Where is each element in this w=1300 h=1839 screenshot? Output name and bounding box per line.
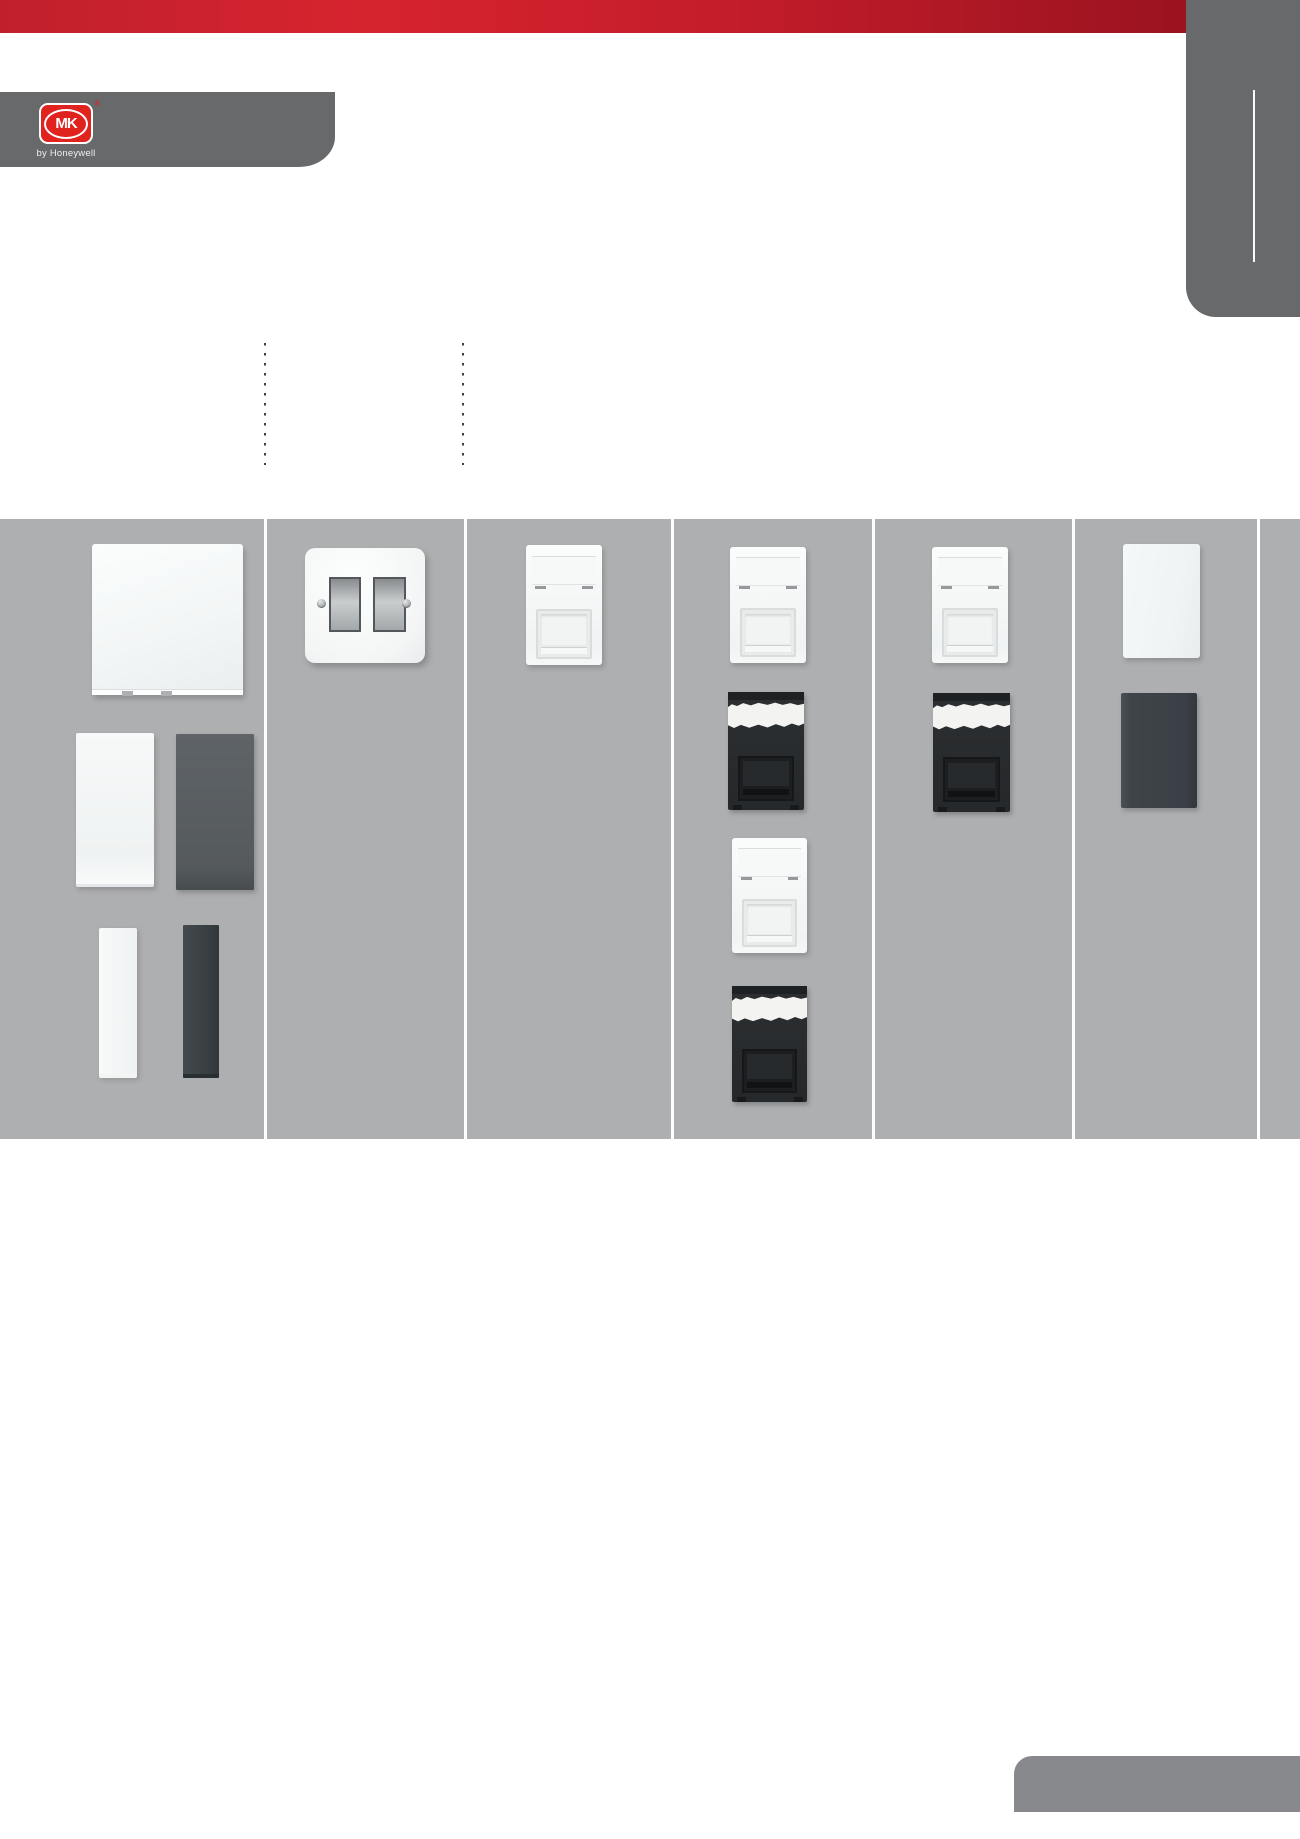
product-data-module-white: [526, 545, 602, 665]
module-foot: [996, 807, 1005, 812]
dotted-guide-1: [264, 343, 266, 465]
product-blank-module-graphite: [1121, 693, 1197, 808]
registered-trademark-icon: ®: [94, 100, 100, 108]
label-window: [736, 557, 800, 586]
product-data-module-white: [932, 547, 1008, 663]
shutter-recess: [942, 608, 998, 657]
column-separator-3: [671, 519, 674, 1139]
module-top-cap: [732, 986, 807, 994]
plate-notch: [161, 691, 172, 696]
shutter-bar: [747, 935, 792, 942]
column-separator-6: [1257, 519, 1260, 1139]
mk-logo-text: MK: [55, 116, 76, 131]
clip-mark: [741, 877, 752, 880]
shutter-bar: [948, 791, 995, 797]
product-data-module-black: [728, 692, 804, 810]
product-blank-module-white: [1123, 544, 1200, 658]
torn-label: [728, 701, 804, 729]
product-data-module-black: [732, 986, 807, 1102]
torn-label: [732, 995, 807, 1023]
module-top-cap: [933, 693, 1010, 701]
shutter-flap: [745, 614, 791, 644]
label-window: [532, 556, 596, 586]
mk-logo-ellipse: MK: [44, 109, 88, 139]
shutter-flap: [747, 1054, 792, 1079]
product-data-module-white: [732, 838, 807, 953]
shutter-recess: [738, 756, 794, 801]
screw-icon: [402, 599, 411, 608]
product-data-module-black: [933, 693, 1010, 812]
shutter-recess: [742, 1049, 798, 1093]
shutter-recess: [536, 609, 592, 659]
clip-mark: [788, 877, 799, 880]
column-separator-2: [464, 519, 467, 1139]
clip-mark: [739, 586, 750, 589]
clip-mark: [535, 586, 546, 589]
product-half-blank-strip-graphite: [183, 925, 219, 1078]
product-grid-band: [0, 519, 1300, 1139]
product-half-blank-strip-white: [99, 928, 137, 1078]
plate-notch: [122, 691, 133, 696]
rocker-switch: [373, 577, 405, 632]
shutter-bar: [541, 647, 587, 654]
module-foot: [790, 805, 799, 810]
dotted-guide-2: [462, 343, 464, 465]
shutter-flap: [541, 614, 587, 645]
module-top-cap: [728, 692, 804, 700]
label-window: [938, 557, 1002, 586]
product-grid-switch-2gang-white: [305, 548, 425, 663]
brand-header-bar: MK ® by Honeywell: [0, 92, 335, 167]
clip-mark: [786, 586, 797, 589]
shutter-flap: [948, 763, 995, 789]
label-window: [738, 848, 801, 876]
column-separator-4: [872, 519, 875, 1139]
torn-label: [933, 703, 1010, 732]
shutter-flap: [947, 614, 993, 644]
catalog-page: MK ® by Honeywell: [0, 0, 1300, 1839]
screw-icon: [317, 599, 326, 608]
shutter-bar: [947, 645, 993, 652]
top-right-tab: [1186, 0, 1300, 317]
shutter-bar: [743, 789, 789, 795]
rocker-switch: [329, 577, 361, 632]
bottom-right-tab: [1014, 1756, 1300, 1812]
mk-logo: MK ®: [39, 103, 93, 144]
shutter-recess: [740, 608, 796, 657]
mk-logo-subtext: by Honeywell: [18, 148, 114, 159]
product-blanking-plate-white-large: [92, 544, 243, 695]
module-foot: [737, 1097, 746, 1102]
clip-mark: [988, 586, 999, 589]
module-foot: [794, 1097, 803, 1102]
product-euro-plate-graphite-tall: [176, 734, 254, 890]
column-separator-1: [264, 519, 267, 1139]
module-foot: [938, 807, 947, 812]
product-data-module-white: [730, 547, 806, 663]
shutter-recess: [742, 899, 798, 947]
product-euro-plate-white-tall: [76, 733, 154, 887]
tab-divider-line: [1253, 90, 1255, 262]
shutter-recess: [943, 757, 1000, 802]
shutter-flap: [743, 761, 789, 786]
shutter-bar: [745, 645, 791, 652]
shutter-bar: [747, 1082, 792, 1088]
clip-mark: [941, 586, 952, 589]
module-foot: [733, 805, 742, 810]
shutter-flap: [747, 904, 792, 933]
column-separator-5: [1072, 519, 1075, 1139]
top-red-banner: [0, 0, 1300, 33]
clip-mark: [582, 586, 593, 589]
